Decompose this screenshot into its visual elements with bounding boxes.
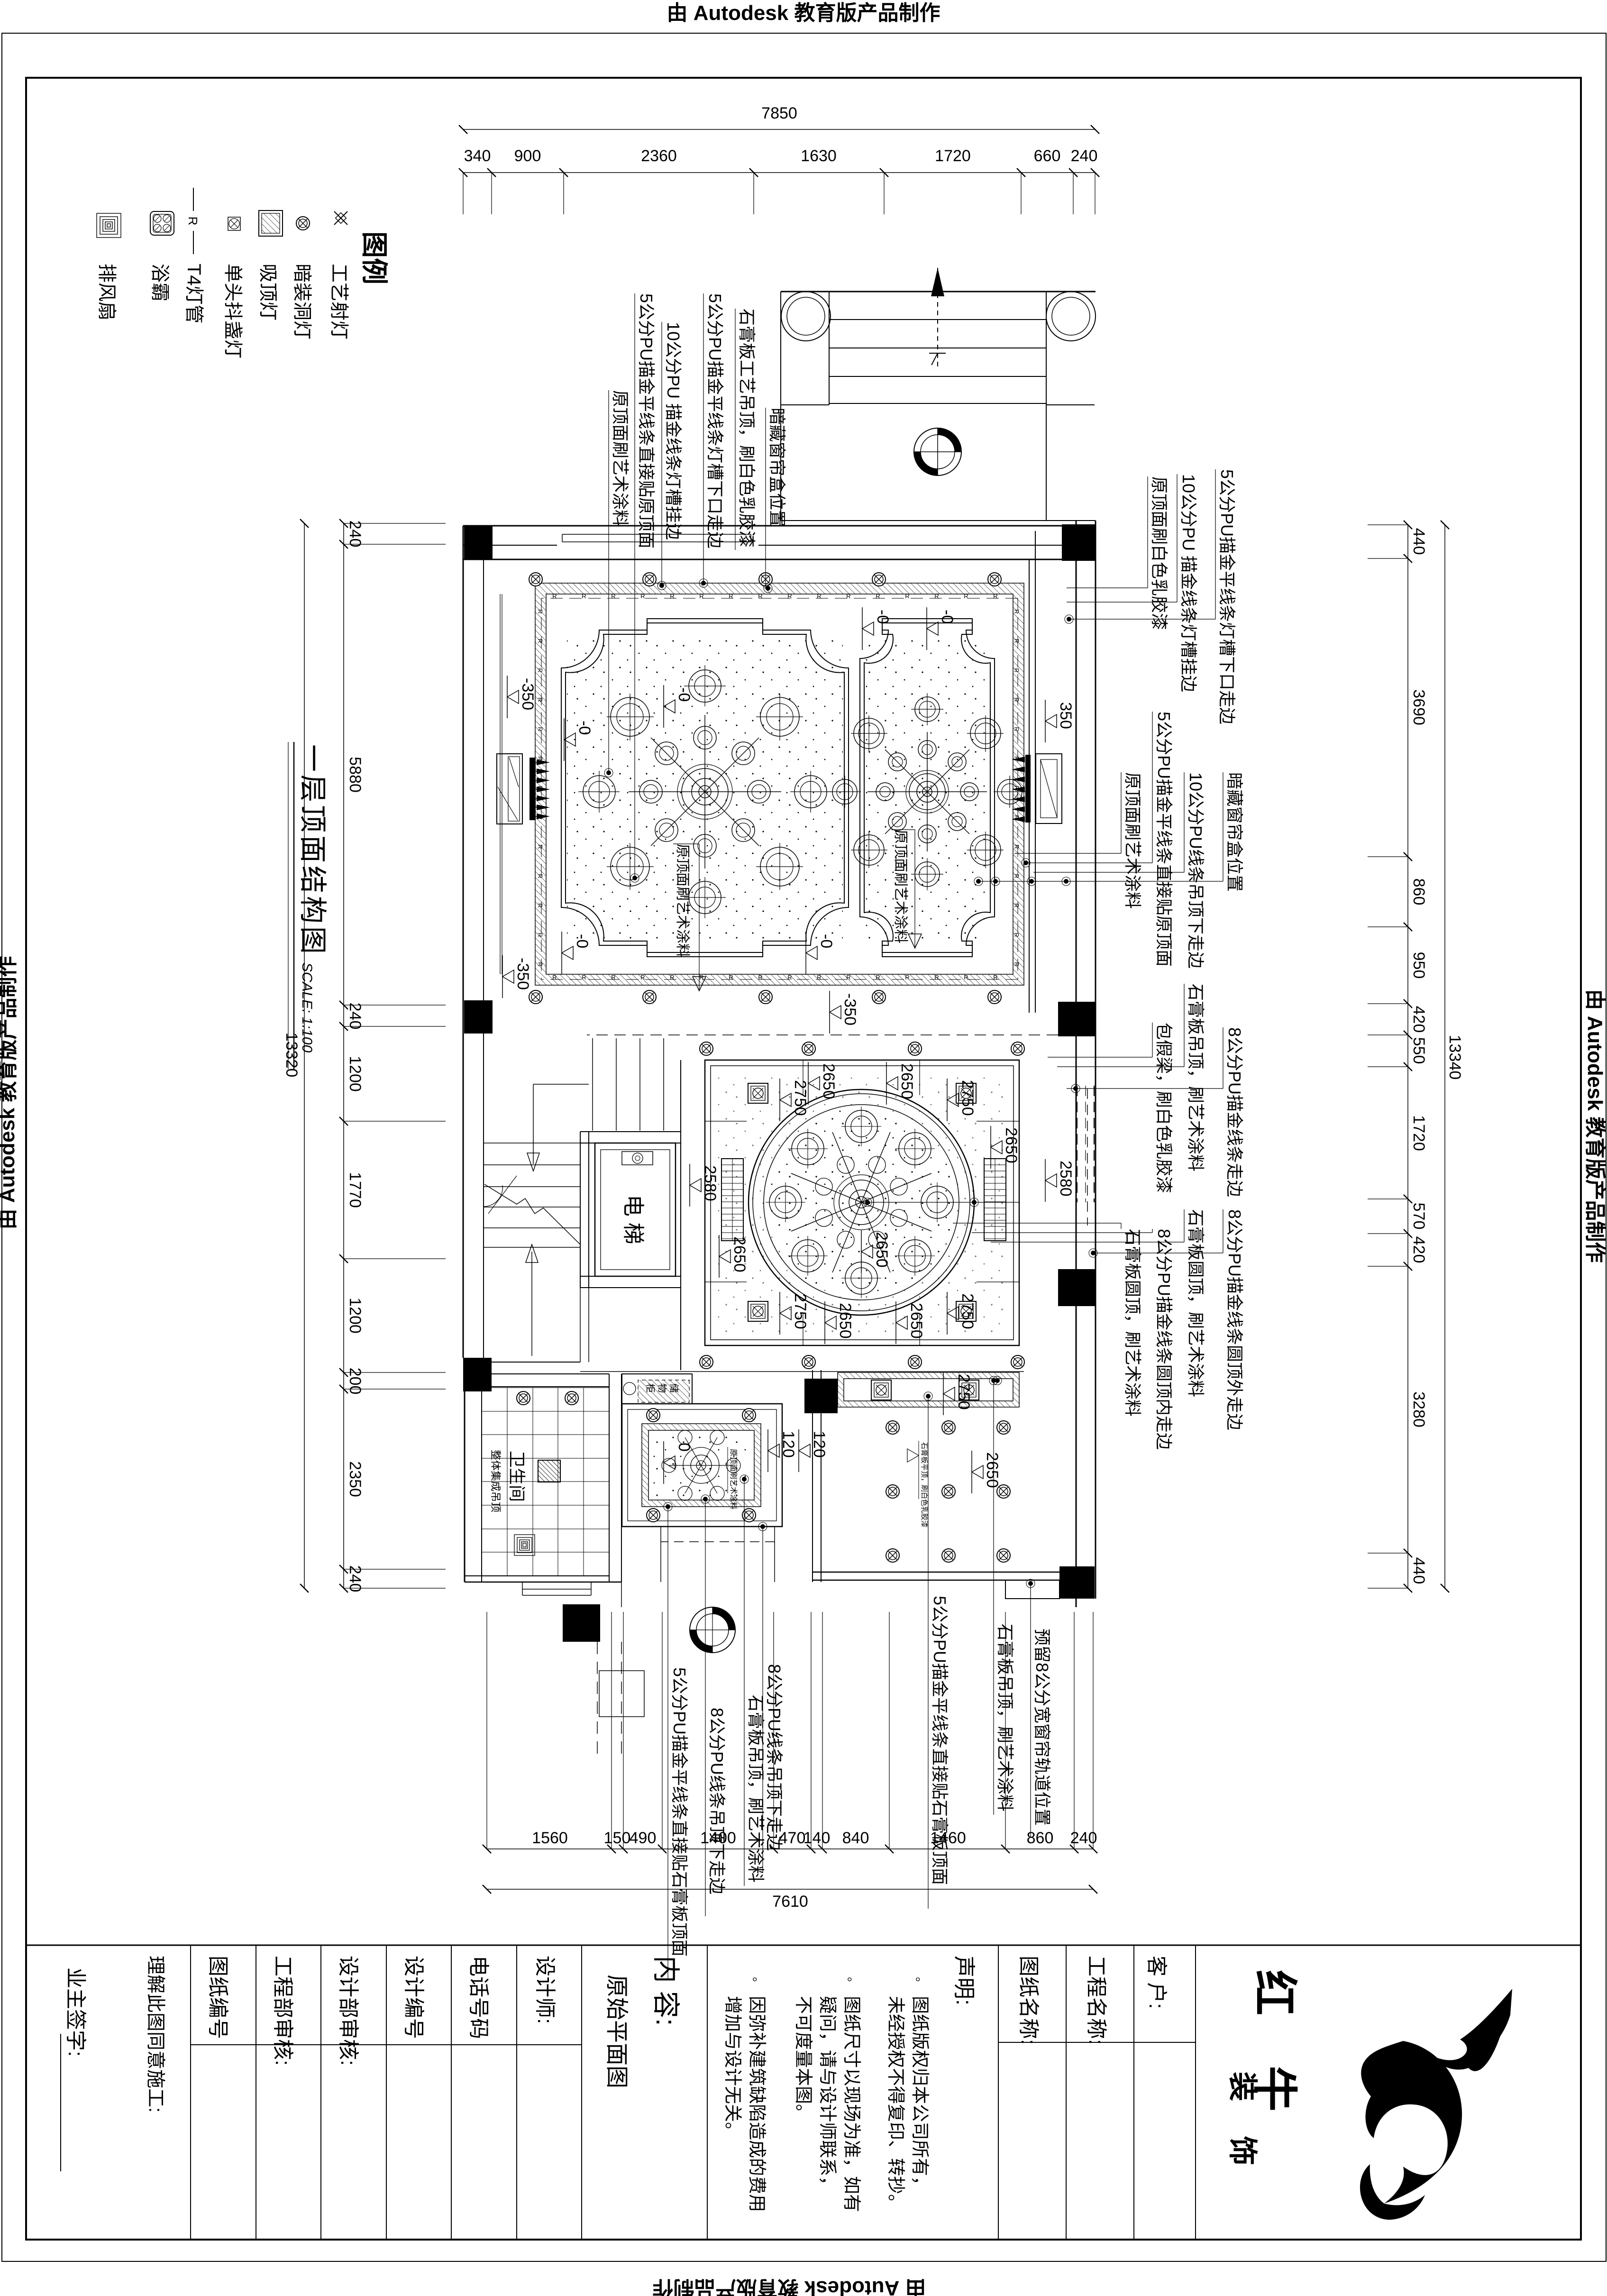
svg-text:R: R	[1013, 903, 1020, 907]
svg-text:R: R	[537, 903, 544, 907]
svg-text:860: 860	[1410, 878, 1428, 906]
svg-text:-0: -0	[575, 721, 593, 735]
svg-text:7850: 7850	[761, 104, 797, 122]
svg-text:-350: -350	[514, 958, 532, 990]
svg-text:R: R	[964, 593, 968, 600]
svg-text:10公分PU 描金线条灯槽挂边: 10公分PU 描金线条灯槽挂边	[1179, 474, 1198, 692]
svg-text:2750: 2750	[791, 1080, 809, 1116]
svg-text:疑问，请与设计师联系，: 疑问，请与设计师联系，	[817, 1996, 837, 2194]
svg-text:490: 490	[630, 1829, 657, 1847]
svg-text:R: R	[537, 815, 544, 819]
svg-text:R: R	[699, 593, 703, 600]
svg-text:吸顶灯: 吸顶灯	[257, 264, 278, 320]
svg-text:因弥补建筑缺陷造成的费用: 因弥补建筑缺陷造成的费用	[747, 1996, 767, 2212]
svg-text:R: R	[817, 974, 821, 981]
svg-text:图纸名称:: 图纸名称:	[1017, 1956, 1040, 2045]
svg-text:2650: 2650	[873, 1232, 891, 1268]
svg-text:R: R	[1013, 639, 1020, 643]
svg-text:R: R	[537, 609, 544, 613]
svg-text:420: 420	[1410, 1236, 1428, 1263]
svg-text:设计编号: 设计编号	[402, 1956, 425, 2039]
svg-text:T4灯管: T4灯管	[183, 264, 204, 324]
svg-text:200: 200	[346, 1368, 364, 1395]
svg-text:R: R	[787, 593, 792, 600]
svg-text:暗藏窗帘盒位置: 暗藏窗帘盒位置	[767, 408, 787, 527]
svg-text:R: R	[934, 593, 939, 600]
svg-text:240: 240	[1070, 1829, 1097, 1847]
svg-text:2650: 2650	[898, 1063, 916, 1099]
svg-text:原顶面刷艺术涂料: 原顶面刷艺术涂料	[729, 1449, 738, 1509]
svg-text:13340: 13340	[1446, 1035, 1464, 1080]
svg-text:1770: 1770	[346, 1172, 364, 1208]
svg-text:2650: 2650	[820, 1063, 838, 1099]
svg-text:550: 550	[1410, 1037, 1428, 1064]
svg-text:R: R	[552, 974, 557, 981]
svg-text:工程名称:: 工程名称:	[1085, 1956, 1108, 2045]
svg-text:R: R	[905, 974, 909, 981]
svg-text:由 Autodesk 教育版产品制作: 由 Autodesk 教育版产品制作	[653, 2277, 926, 2296]
svg-text:业主签字:: 业主签字:	[64, 1967, 87, 2057]
svg-text:2650: 2650	[730, 1236, 749, 1272]
svg-text:-0: -0	[874, 610, 892, 624]
svg-text:电 梯: 电 梯	[621, 1195, 646, 1244]
svg-text:R: R	[537, 668, 544, 672]
svg-text:原顶面刷艺术涂料: 原顶面刷艺术涂料	[675, 844, 690, 958]
svg-text:R: R	[670, 974, 674, 981]
svg-text:8公分PU描金线条圆顶内走边: 8公分PU描金线条圆顶内走边	[1154, 1229, 1174, 1450]
svg-text:R: R	[552, 593, 557, 600]
svg-text:840: 840	[842, 1829, 869, 1847]
svg-text:R: R	[934, 974, 939, 981]
svg-text:8公分PU描金线条圆顶外走边: 8公分PU描金线条圆顶外走边	[1225, 1209, 1244, 1430]
svg-text:570: 570	[1410, 1203, 1428, 1230]
svg-text:2360: 2360	[641, 147, 677, 165]
svg-text:R: R	[1013, 962, 1020, 966]
svg-text:R: R	[817, 593, 821, 600]
svg-text:10公分PU 描金线条灯槽挂边: 10公分PU 描金线条灯槽挂边	[664, 322, 683, 540]
svg-text:增加与设计无关。: 增加与设计无关。	[722, 1996, 742, 2140]
svg-text:石膏板平顶，刷白色乳胶漆: 石膏板平顶，刷白色乳胶漆	[920, 1442, 929, 1528]
svg-text:R: R	[787, 974, 792, 981]
svg-text:5公分PU描金平线条灯槽下口走边: 5公分PU描金平线条灯槽下口走边	[1217, 469, 1237, 724]
svg-text:R: R	[1013, 756, 1020, 760]
svg-text:120: 120	[779, 1431, 797, 1458]
svg-text:-0: -0	[938, 610, 956, 624]
svg-text:石膏板圆顶，刷艺术涂料: 石膏板圆顶，刷艺术涂料	[1123, 1229, 1142, 1417]
svg-text:240: 240	[1071, 147, 1098, 165]
svg-text:图纸编号: 图纸编号	[206, 1956, 229, 2039]
svg-text:R: R	[1013, 874, 1020, 878]
svg-text:2750: 2750	[959, 1293, 977, 1329]
svg-text:R: R	[758, 974, 762, 981]
svg-text:2580: 2580	[1057, 1161, 1075, 1197]
svg-text:R: R	[905, 593, 909, 600]
svg-text:R: R	[537, 639, 544, 643]
svg-text:整体集成吊顶: 整体集成吊顶	[490, 1450, 502, 1512]
svg-text:2750: 2750	[791, 1293, 809, 1329]
svg-text:R: R	[1013, 727, 1020, 731]
svg-text:5公分PU描金平线条直接贴原顶面: 5公分PU描金平线条直接贴原顶面	[1154, 712, 1174, 967]
svg-text:声明:: 声明:	[952, 1956, 977, 2005]
svg-text:2650: 2650	[836, 1303, 854, 1339]
svg-text:工艺射灯: 工艺射灯	[329, 264, 349, 339]
svg-text:R: R	[537, 844, 544, 849]
svg-text:物: 物	[657, 1383, 667, 1393]
svg-text:石膏板吊顶，刷艺术涂料: 石膏板吊顶，刷艺术涂料	[995, 1624, 1015, 1811]
svg-text:3690: 3690	[1410, 689, 1428, 725]
svg-text:图纸版权归本公司所有，: 图纸版权归本公司所有，	[910, 1996, 930, 2194]
svg-text:10公分PU线条吊顶下走边: 10公分PU线条吊顶下走边	[1186, 772, 1205, 969]
svg-text:工程部审核:: 工程部审核:	[271, 1956, 294, 2066]
svg-text:5公分PU描金平线条直接贴石膏板顶面: 5公分PU描金平线条直接贴石膏板顶面	[670, 1667, 689, 1957]
svg-text:8公分PU描金线条走边: 8公分PU描金线条走边	[1225, 1027, 1244, 1197]
svg-text:SCALE: 1:100: SCALE: 1:100	[299, 962, 315, 1052]
svg-text:240: 240	[346, 1003, 364, 1030]
svg-text:140: 140	[803, 1829, 831, 1847]
svg-text:R: R	[758, 593, 762, 600]
svg-text:R: R	[670, 593, 674, 600]
svg-text:350: 350	[1057, 702, 1075, 729]
svg-text:R: R	[611, 974, 615, 981]
svg-text:装 饰: 装 饰	[1226, 2072, 1259, 2178]
svg-text:1200: 1200	[346, 1056, 364, 1092]
svg-text:420: 420	[1410, 1006, 1428, 1033]
svg-text:2650: 2650	[1002, 1127, 1020, 1163]
svg-text:2650: 2650	[907, 1303, 925, 1339]
svg-text:客 户:: 客 户:	[1145, 1956, 1168, 2009]
svg-text:R: R	[537, 962, 544, 966]
svg-text:660: 660	[1034, 147, 1061, 165]
svg-text:R: R	[876, 593, 880, 600]
svg-text:未经授权不得复印、转抄。: 未经授权不得复印、转抄。	[886, 1996, 905, 2212]
svg-text:R: R	[537, 697, 544, 702]
svg-text:2750: 2750	[959, 1080, 977, 1116]
svg-text:设计师:: 设计师:	[533, 1956, 557, 2024]
svg-text:2350: 2350	[346, 1461, 364, 1497]
svg-text:-350: -350	[519, 678, 537, 710]
svg-text:8公分PU线条吊顶下走边: 8公分PU线条吊顶下走边	[765, 1664, 784, 1851]
svg-text:R: R	[582, 593, 586, 600]
svg-text:R: R	[846, 974, 850, 981]
svg-text:单头抖盏灯: 单头抖盏灯	[222, 264, 243, 358]
svg-text:440: 440	[1410, 1557, 1428, 1584]
svg-text:R: R	[876, 974, 880, 981]
svg-text:R: R	[537, 727, 544, 731]
svg-text:R: R	[964, 974, 968, 981]
svg-text:R: R	[993, 974, 997, 981]
svg-text:R: R	[1013, 697, 1020, 702]
svg-text:R: R	[729, 974, 733, 981]
svg-text:电话号码: 电话号码	[467, 1956, 490, 2039]
svg-text:1720: 1720	[1410, 1115, 1428, 1151]
svg-text:。: 。	[751, 1977, 765, 1989]
svg-text:理解此图同意施工:: 理解此图同意施工:	[145, 1956, 166, 2113]
svg-text:3280: 3280	[1410, 1391, 1428, 1427]
svg-text:5公分PU描金平线条直接贴石膏板顶面: 5公分PU描金平线条直接贴石膏板顶面	[930, 1596, 950, 1885]
svg-text:R: R	[640, 974, 645, 981]
svg-text:440: 440	[1410, 528, 1428, 555]
svg-text:R: R	[537, 933, 544, 937]
svg-text:设计部审核:: 设计部审核:	[337, 1956, 360, 2066]
svg-text:7610: 7610	[772, 1893, 808, 1911]
svg-text:石膏板圆顶，刷艺术涂料: 石膏板圆顶，刷艺术涂料	[1186, 1209, 1205, 1397]
svg-text:R: R	[1013, 815, 1020, 819]
svg-text:R: R	[699, 974, 703, 981]
svg-text:0: 0	[675, 1443, 693, 1452]
svg-text:暗装洞灯: 暗装洞灯	[292, 264, 312, 339]
svg-text:1200: 1200	[346, 1298, 364, 1334]
svg-text:预留8公分宽窗帘轨道位置: 预留8公分宽窗帘轨道位置	[1032, 1628, 1052, 1826]
svg-text:由 Autodesk 教育版产品制作: 由 Autodesk 教育版产品制作	[0, 956, 19, 1230]
svg-text:R: R	[537, 786, 544, 790]
svg-text:340: 340	[464, 147, 491, 165]
svg-text:900: 900	[514, 147, 541, 165]
svg-text:-350: -350	[841, 993, 859, 1025]
svg-text:-0: -0	[817, 934, 835, 948]
svg-text:R: R	[846, 593, 850, 600]
svg-text:13320: 13320	[283, 1033, 301, 1078]
svg-text:原顶面刷艺术涂料: 原顶面刷艺术涂料	[1123, 772, 1142, 909]
svg-text:150: 150	[604, 1829, 631, 1847]
svg-text:R: R	[611, 593, 615, 600]
svg-text:950: 950	[1410, 952, 1428, 979]
svg-text:卫生间: 卫生间	[507, 1451, 527, 1502]
svg-text:浴霸: 浴霸	[149, 264, 170, 302]
svg-text:R: R	[640, 593, 645, 600]
svg-text:5880: 5880	[346, 757, 364, 793]
svg-text:石膏板吊顶，刷艺术涂料: 石膏板吊顶，刷艺术涂料	[1186, 984, 1205, 1171]
svg-text:R: R	[1013, 933, 1020, 937]
svg-text:240: 240	[346, 521, 364, 548]
svg-text:R: R	[1013, 844, 1020, 849]
svg-text:R: R	[537, 756, 544, 760]
svg-text:8公分PU线条吊顶下走边: 8公分PU线条吊顶下走边	[707, 1708, 727, 1894]
svg-text:石膏板工艺吊顶，刷白色乳胶漆: 石膏板工艺吊顶，刷白色乳胶漆	[737, 309, 757, 548]
svg-text:R: R	[729, 593, 733, 600]
svg-text:原始平面图: 原始平面图	[604, 1975, 629, 2088]
svg-text:R: R	[1013, 668, 1020, 672]
svg-text:排风扇: 排风扇	[96, 264, 117, 320]
svg-text:2750: 2750	[955, 1374, 973, 1410]
svg-text:暗藏窗帘盒位置: 暗藏窗帘盒位置	[1225, 772, 1244, 892]
svg-text:由 Autodesk 教育版产品制作: 由 Autodesk 教育版产品制作	[667, 1, 940, 25]
svg-text:不可度量本图。: 不可度量本图。	[793, 1996, 813, 2122]
svg-text:包假梁，刷白色乳胶漆: 包假梁，刷白色乳胶漆	[1154, 1023, 1174, 1193]
svg-text:柜: 柜	[645, 1383, 656, 1393]
svg-text:一层顶面结构图: 一层顶面结构图	[297, 744, 328, 957]
svg-text:R: R	[993, 593, 997, 600]
svg-text:内 容:: 内 容:	[650, 1956, 681, 2026]
svg-text:。: 。	[914, 1977, 928, 1989]
svg-text:1560: 1560	[532, 1829, 568, 1847]
svg-text:R: R	[582, 974, 586, 981]
svg-text:R: R	[537, 874, 544, 878]
svg-text:1630: 1630	[801, 147, 837, 165]
svg-text:2580: 2580	[701, 1165, 719, 1201]
svg-text:5公分PU描金平线条灯槽下口走边: 5公分PU描金平线条灯槽下口走边	[705, 293, 725, 549]
svg-text:-0: -0	[675, 687, 693, 702]
svg-text:原顶面刷艺术涂料: 原顶面刷艺术涂料	[893, 830, 908, 943]
svg-text:原顶面刷艺术涂料: 原顶面刷艺术涂料	[611, 390, 630, 527]
svg-text:储: 储	[668, 1383, 679, 1393]
svg-text:-0: -0	[573, 934, 591, 948]
svg-text:2650: 2650	[983, 1452, 1001, 1488]
svg-text:5公分PU描金平线条直接贴原顶面: 5公分PU描金平线条直接贴原顶面	[637, 293, 656, 549]
svg-text:R: R	[186, 217, 200, 226]
svg-text:。: 。	[846, 1977, 860, 1989]
svg-text:1720: 1720	[935, 147, 971, 165]
svg-text:图例: 图例	[359, 231, 389, 284]
svg-text:原顶面刷白色乳胶漆: 原顶面刷白色乳胶漆	[1150, 476, 1169, 630]
svg-text:图纸尺寸以现场为准，如有: 图纸尺寸以现场为准，如有	[841, 1996, 861, 2212]
svg-text:R: R	[1013, 609, 1020, 613]
svg-text:240: 240	[346, 1565, 364, 1592]
svg-text:由 Autodesk 教育版产品制作: 由 Autodesk 教育版产品制作	[1583, 989, 1607, 1263]
